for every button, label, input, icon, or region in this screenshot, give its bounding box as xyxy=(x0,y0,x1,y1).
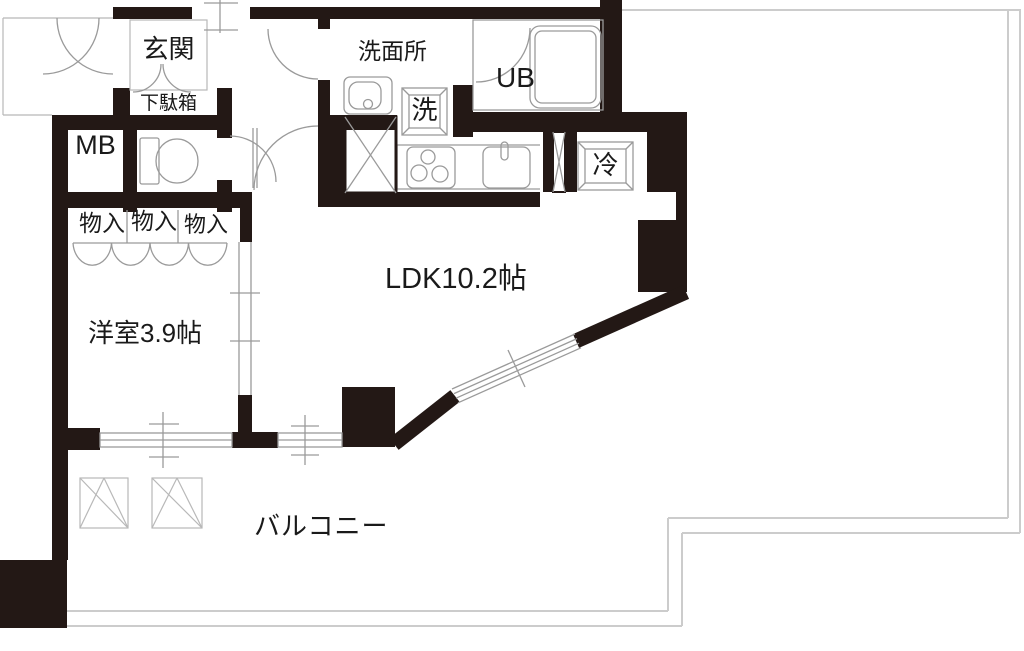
pipe-shaft-icon xyxy=(345,117,396,193)
kitchen-counter xyxy=(397,145,540,189)
sliding-partition xyxy=(230,242,260,395)
kitchen-sink-icon xyxy=(483,142,530,188)
diagonal-wall-upper xyxy=(576,292,686,341)
toilet-icon xyxy=(140,138,198,184)
south-window-2 xyxy=(278,415,342,465)
label-storage-2: 物入 xyxy=(131,210,177,233)
entrance-door-arcs xyxy=(133,64,191,92)
hall-ldk-door xyxy=(253,126,318,190)
label-washer: 洗 xyxy=(402,97,447,123)
label-refrigerator: 冷 xyxy=(578,152,633,178)
label-meter-box: MB xyxy=(68,132,123,159)
label-shoe-cabinet: 下駄箱 xyxy=(130,94,207,113)
bathtub-icon xyxy=(530,26,601,108)
balcony-hatch-icon-1 xyxy=(80,478,128,528)
washroom-door-arc xyxy=(268,29,318,79)
washbasin-icon xyxy=(344,77,392,114)
stove-icon xyxy=(407,147,455,188)
label-storage-3: 物入 xyxy=(184,214,228,236)
label-storage-1: 物入 xyxy=(79,212,125,235)
label-washroom: 洗面所 xyxy=(332,40,453,63)
pipe-shaft2-icon xyxy=(553,132,565,192)
label-entrance: 玄関 xyxy=(130,36,207,62)
south-window-1 xyxy=(100,412,232,468)
label-ldk: LDK10.2帖 xyxy=(385,265,527,294)
label-western-room: 洋室3.9帖 xyxy=(88,320,202,346)
label-unit-bath: UB xyxy=(496,64,535,92)
corridor-door-arcs xyxy=(43,18,113,74)
corridor-outline xyxy=(3,18,113,115)
front-door-marks xyxy=(204,0,238,33)
diagonal-window xyxy=(452,334,581,403)
floor-plan: 玄関 下駄箱 MB 物入 物入 物入 洗面所 洗 UB 冷 LDK10.2帖 洋… xyxy=(0,0,1024,651)
unit-bath-room xyxy=(473,20,603,110)
label-balcony: バルコニー xyxy=(254,513,388,539)
diagonal-wall-lower xyxy=(394,396,455,444)
balcony-hatch-icon-2 xyxy=(152,478,202,528)
